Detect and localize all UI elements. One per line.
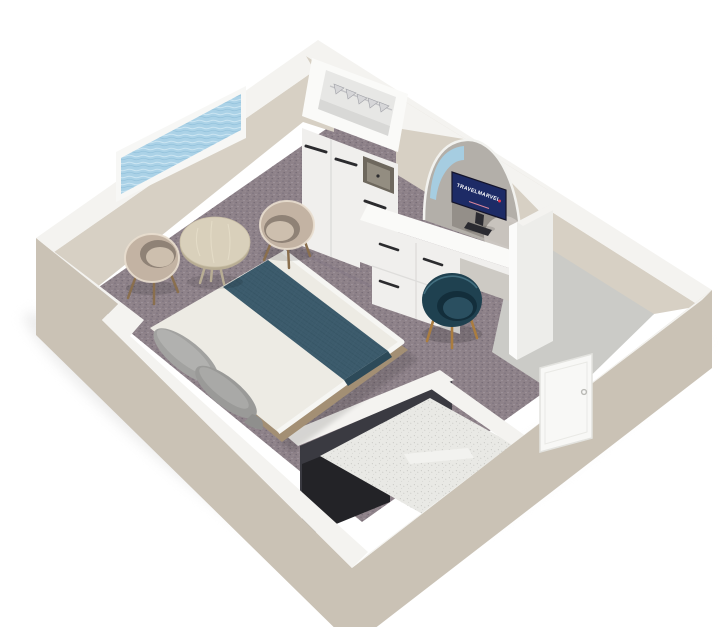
bulkhead-partition — [509, 203, 559, 360]
table-shadow — [187, 275, 243, 289]
table-top — [180, 217, 250, 267]
room-cutaway-render: TRAVELMARVEL — [0, 0, 726, 627]
bulkhead-end-face — [509, 222, 517, 360]
tv-logo-dot-icon — [498, 200, 501, 203]
chair-left-seat — [146, 247, 174, 267]
chair-right-seat — [266, 221, 294, 241]
isometric-room-svg: TRAVELMARVEL — [0, 0, 726, 627]
teal-armchair — [422, 273, 482, 348]
entrance-door — [540, 354, 592, 452]
tub-chair-right — [260, 201, 314, 268]
safe-handle — [376, 174, 379, 177]
bulkhead-face — [517, 203, 553, 360]
armchair-seat — [443, 297, 473, 319]
